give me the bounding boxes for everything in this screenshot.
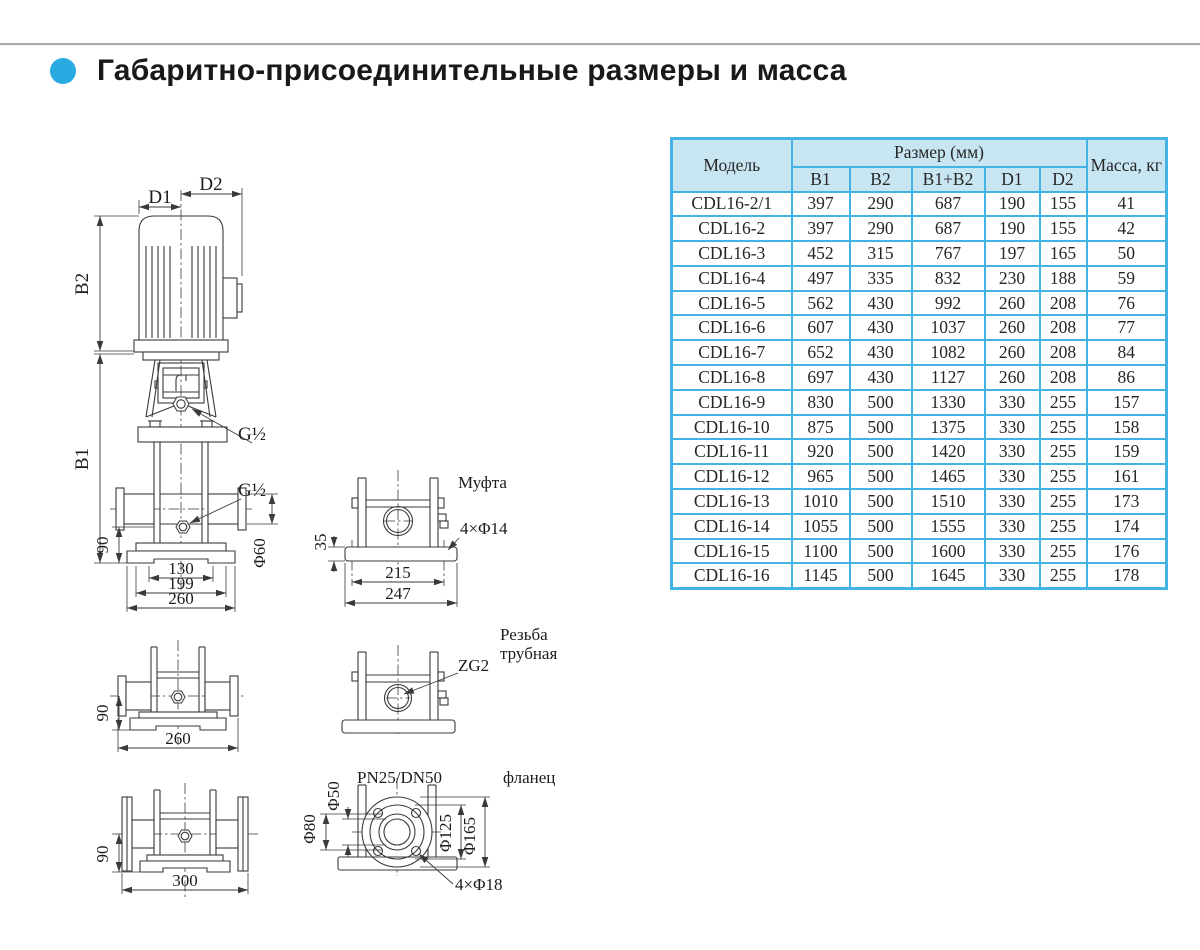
dim-phi60-label: Φ60 [250,538,269,567]
catalog-page: { "title": "Габаритно-присоединительные … [0,0,1200,950]
oval-flange-front-view: 90 260 [93,640,246,752]
g-half-top-label: G½ [238,424,266,445]
value-cell: 1127 [912,365,985,390]
dim-247-label: 247 [385,584,411,603]
top-divider [0,43,1200,45]
value-cell: 165 [1040,241,1087,266]
dim-90-flange-label: 90 [93,846,112,863]
model-cell: CDL16-9 [672,390,792,415]
value-cell: 562 [792,291,850,316]
value-cell: 330 [985,563,1040,588]
technical-drawings: G½ G½ D1 D2 B2 B1 90 Φ60 [40,140,660,940]
value-cell: 176 [1087,539,1167,564]
value-cell: 330 [985,489,1040,514]
model-cell: CDL16-10 [672,415,792,440]
value-cell: 59 [1087,266,1167,291]
value-cell: 697 [792,365,850,390]
table-row: CDL16-2/139729068719015541 [672,192,1167,217]
value-cell: 1100 [792,539,850,564]
g-half-side-label: G½ [238,480,266,501]
col-header-d1: D1 [985,167,1040,192]
dim-phi165-label: Φ165 [460,817,479,855]
table-row: CDL16-8697430112726020886 [672,365,1167,390]
value-cell: 178 [1087,563,1167,588]
value-cell: 330 [985,464,1040,489]
value-cell: 330 [985,539,1040,564]
value-cell: 255 [1040,390,1087,415]
table-row: CDL16-129655001465330255161 [672,464,1167,489]
model-cell: CDL16-5 [672,291,792,316]
value-cell: 1082 [912,340,985,365]
dim-300-label: 300 [172,871,198,890]
value-cell: 430 [850,315,912,340]
value-cell: 1375 [912,415,985,440]
model-cell: CDL16-7 [672,340,792,365]
value-cell: 315 [850,241,912,266]
value-cell: 875 [792,415,850,440]
value-cell: 155 [1040,192,1087,217]
thread-title-line1: Резьба [500,625,548,644]
pump-front-view: G½ G½ D1 D2 B2 B1 90 Φ60 [72,174,278,612]
col-header-b1b2: B1+B2 [912,167,985,192]
value-cell: 208 [1040,340,1087,365]
value-cell: 255 [1040,539,1087,564]
model-cell: CDL16-14 [672,514,792,539]
coupling-side-view: Муфта 4×Φ14 35 215 247 [311,470,508,607]
pn-dn-label: PN25/DN50 [357,768,442,787]
value-cell: 1145 [792,563,850,588]
value-cell: 255 [1040,514,1087,539]
col-header-b1: B1 [792,167,850,192]
col-header-b2: B2 [850,167,912,192]
value-cell: 832 [912,266,985,291]
value-cell: 652 [792,340,850,365]
value-cell: 190 [985,192,1040,217]
value-cell: 920 [792,439,850,464]
table-row: CDL16-108755001375330255158 [672,415,1167,440]
bullet-icon [50,58,76,84]
value-cell: 84 [1087,340,1167,365]
model-cell: CDL16-6 [672,315,792,340]
value-cell: 500 [850,514,912,539]
value-cell: 1510 [912,489,985,514]
dimensions-table: Модель Размер (мм) Масса, кг B1 B2 B1+B2… [670,137,1168,590]
dim-260-label: 260 [168,589,194,608]
value-cell: 76 [1087,291,1167,316]
value-cell: 41 [1087,192,1167,217]
value-cell: 208 [1040,291,1087,316]
table-row: CDL16-556243099226020876 [672,291,1167,316]
value-cell: 397 [792,192,850,217]
value-cell: 50 [1087,241,1167,266]
value-cell: 992 [912,291,985,316]
flange-title: фланец [503,768,555,787]
value-cell: 157 [1087,390,1167,415]
value-cell: 161 [1087,464,1167,489]
value-cell: 260 [985,315,1040,340]
value-cell: 1330 [912,390,985,415]
model-cell: CDL16-16 [672,563,792,588]
model-cell: CDL16-2 [672,216,792,241]
value-cell: 77 [1087,315,1167,340]
table-row: CDL16-1611455001645330255178 [672,563,1167,588]
value-cell: 335 [850,266,912,291]
dim-phi50-label: Φ50 [324,781,343,810]
coupling-title: Муфта [458,473,507,492]
value-cell: 500 [850,539,912,564]
value-cell: 290 [850,192,912,217]
col-header-mass: Масса, кг [1087,139,1167,192]
col-header-size-group: Размер (мм) [792,139,1087,167]
round-flange-front-view: 90 300 [93,783,258,900]
flange-detail-view: PN25/DN50 фланец Φ50 Φ80 Φ125 Φ165 4×Φ18 [300,768,555,894]
model-cell: CDL16-11 [672,439,792,464]
value-cell: 260 [985,365,1040,390]
value-cell: 500 [850,563,912,588]
model-cell: CDL16-8 [672,365,792,390]
value-cell: 255 [1040,439,1087,464]
value-cell: 397 [792,216,850,241]
section-header: Габаритно-присоединительные размеры и ма… [50,54,847,88]
value-cell: 330 [985,439,1040,464]
value-cell: 687 [912,216,985,241]
value-cell: 260 [985,340,1040,365]
table-row: CDL16-6607430103726020877 [672,315,1167,340]
value-cell: 1010 [792,489,850,514]
dim-b2-label: B2 [72,273,93,295]
table-row: CDL16-98305001330330255157 [672,390,1167,415]
thread-side-view: Резьба трубная ZG2 [342,625,557,737]
value-cell: 159 [1087,439,1167,464]
dim-phi125-label: Φ125 [436,814,455,852]
table-row: CDL16-1511005001600330255176 [672,539,1167,564]
value-cell: 1037 [912,315,985,340]
value-cell: 208 [1040,315,1087,340]
dim-90-label: 90 [93,537,112,554]
value-cell: 158 [1087,415,1167,440]
dim-260-oval-label: 260 [165,729,191,748]
value-cell: 500 [850,415,912,440]
value-cell: 208 [1040,365,1087,390]
value-cell: 687 [912,192,985,217]
value-cell: 330 [985,415,1040,440]
page-title: Габаритно-присоединительные размеры и ма… [97,54,847,88]
value-cell: 500 [850,390,912,415]
model-cell: CDL16-4 [672,266,792,291]
col-header-model: Модель [672,139,792,192]
thread-title-line2: трубная [500,644,557,663]
value-cell: 230 [985,266,1040,291]
value-cell: 1645 [912,563,985,588]
coupling-holes-label: 4×Φ14 [460,519,508,538]
value-cell: 965 [792,464,850,489]
table-row: CDL16-119205001420330255159 [672,439,1167,464]
table-row: CDL16-449733583223018859 [672,266,1167,291]
value-cell: 197 [985,241,1040,266]
value-cell: 1555 [912,514,985,539]
table-row: CDL16-1410555001555330255174 [672,514,1167,539]
zg2-label: ZG2 [458,656,489,675]
table-row: CDL16-345231576719716550 [672,241,1167,266]
value-cell: 500 [850,464,912,489]
value-cell: 607 [792,315,850,340]
dim-215-label: 215 [385,563,411,582]
value-cell: 330 [985,390,1040,415]
value-cell: 255 [1040,489,1087,514]
model-cell: CDL16-2/1 [672,192,792,217]
table-row: CDL16-239729068719015542 [672,216,1167,241]
value-cell: 155 [1040,216,1087,241]
value-cell: 452 [792,241,850,266]
table-row: CDL16-1310105001510330255173 [672,489,1167,514]
flange-holes-label: 4×Φ18 [455,875,503,894]
value-cell: 86 [1087,365,1167,390]
model-cell: CDL16-12 [672,464,792,489]
table-row: CDL16-7652430108226020884 [672,340,1167,365]
value-cell: 430 [850,291,912,316]
value-cell: 42 [1087,216,1167,241]
value-cell: 430 [850,365,912,390]
value-cell: 500 [850,489,912,514]
value-cell: 190 [985,216,1040,241]
dim-90-oval-label: 90 [93,705,112,722]
model-cell: CDL16-15 [672,539,792,564]
value-cell: 497 [792,266,850,291]
value-cell: 290 [850,216,912,241]
dim-d1-label: D1 [148,187,171,208]
dim-d2-label: D2 [199,174,222,195]
value-cell: 188 [1040,266,1087,291]
dim-b1-label: B1 [72,448,93,470]
value-cell: 173 [1087,489,1167,514]
value-cell: 830 [792,390,850,415]
value-cell: 255 [1040,464,1087,489]
value-cell: 174 [1087,514,1167,539]
value-cell: 1465 [912,464,985,489]
value-cell: 430 [850,340,912,365]
value-cell: 500 [850,439,912,464]
value-cell: 767 [912,241,985,266]
model-cell: CDL16-13 [672,489,792,514]
model-cell: CDL16-3 [672,241,792,266]
value-cell: 260 [985,291,1040,316]
value-cell: 255 [1040,563,1087,588]
dim-phi80-label: Φ80 [300,814,319,843]
table-body: CDL16-2/139729068719015541CDL16-23972906… [672,192,1167,589]
value-cell: 1420 [912,439,985,464]
value-cell: 1600 [912,539,985,564]
dim-35-label: 35 [311,534,330,551]
col-header-d2: D2 [1040,167,1087,192]
value-cell: 1055 [792,514,850,539]
value-cell: 255 [1040,415,1087,440]
value-cell: 330 [985,514,1040,539]
